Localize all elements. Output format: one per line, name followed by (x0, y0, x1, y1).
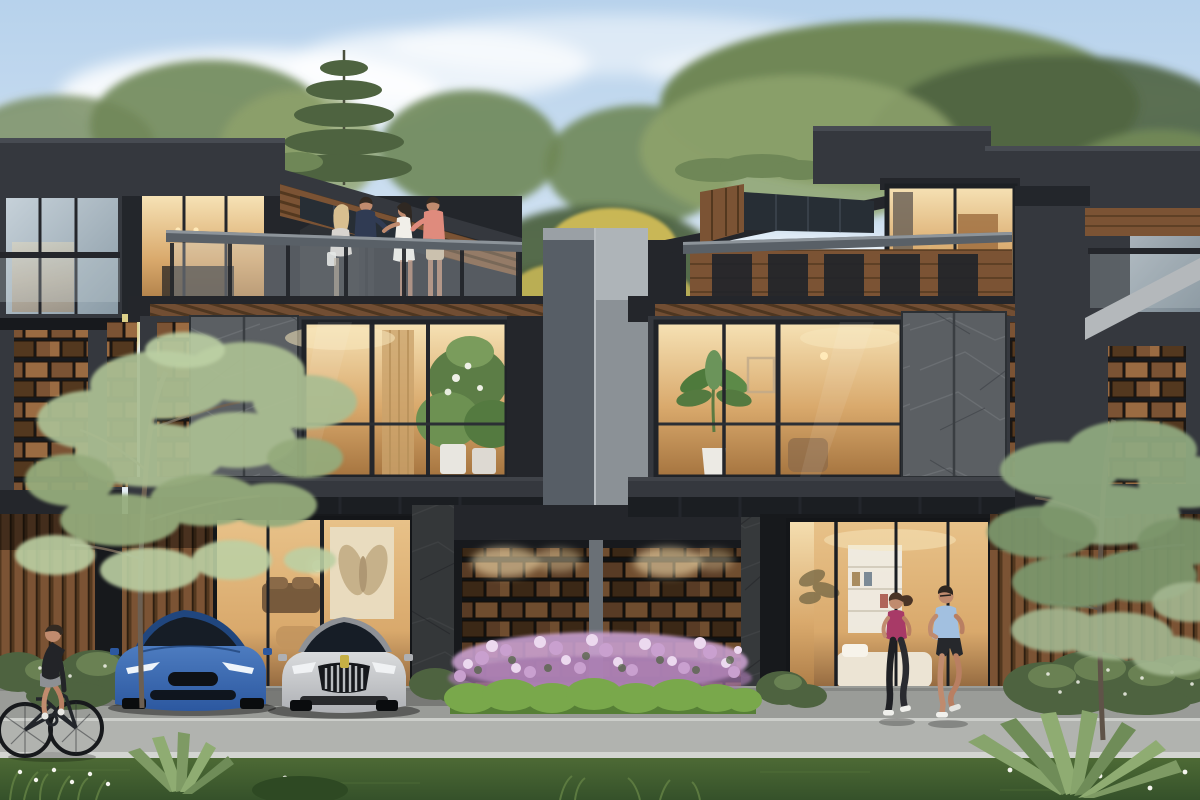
center-divider-wall (543, 240, 595, 520)
architectural-render (0, 0, 1200, 800)
glass-balustrade (0, 258, 120, 302)
terrace-parapet (683, 232, 1014, 307)
bed (836, 652, 932, 688)
car-badge (340, 655, 349, 668)
lit-interior-window (656, 322, 902, 490)
